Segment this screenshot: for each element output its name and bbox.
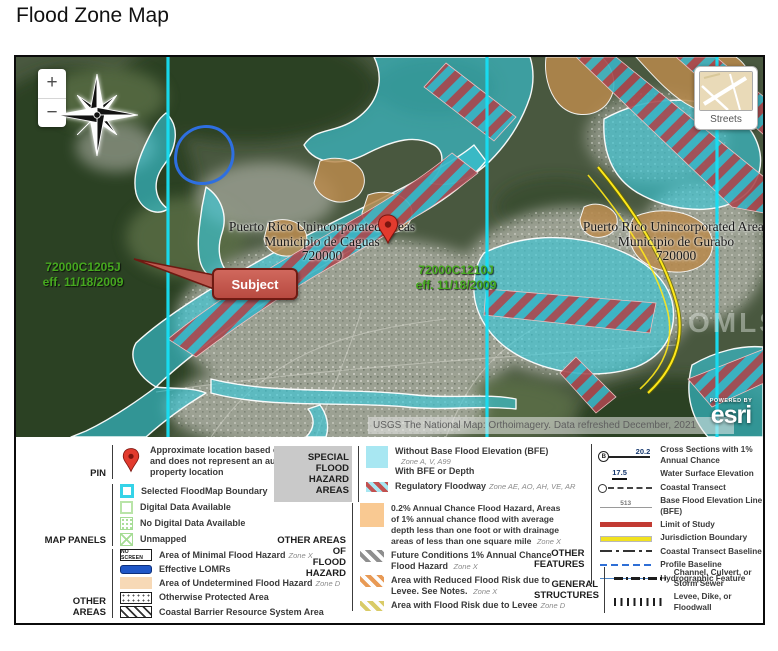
no-digital-data-swatch	[120, 517, 133, 530]
legend-item: 513 Base Flood Elevation Line (BFE)	[598, 495, 763, 517]
coastal-barrier-swatch	[120, 606, 152, 618]
levee-dike-symbol	[612, 596, 668, 608]
legend-item: No Digital Data Available	[120, 517, 268, 530]
map-canvas[interactable]: + −	[16, 57, 763, 437]
firm-panel-label-left: 72000C1205J eff. 11/18/2009	[43, 260, 124, 290]
general-structures-section-label: GENERAL STRUCTURES	[534, 579, 598, 601]
limit-of-study-symbol	[598, 518, 654, 530]
legend-group-map-panels: MAP PANELS Selected FloodMap Boundary Di…	[44, 484, 268, 546]
unmapped-swatch	[120, 533, 133, 546]
watermark: OMLS	[688, 307, 763, 339]
compass-rose-icon[interactable]	[55, 73, 139, 157]
attribution-bar: USGS The National Map: Orthoimagery. Dat…	[368, 417, 734, 434]
channel-culvert-symbol	[612, 572, 668, 584]
legend-group-other-features: OTHER FEATURES B 20.2 Cross Sections wit…	[534, 444, 763, 584]
legend-group-other-flood: OTHER AREAS OF FLOOD HAZARD 0.2% Annual …	[274, 503, 565, 611]
coastal-transect-symbol	[598, 481, 654, 493]
esri-wordmark: esri	[700, 404, 762, 426]
subject-label: Subject	[232, 277, 279, 292]
flood-map-frame: + −	[14, 55, 765, 625]
legend-pin-icon	[122, 445, 140, 475]
pin-section-label: PIN	[44, 468, 106, 479]
legend-item: Channel, Culvert, or Storm Sewer	[612, 567, 763, 589]
no-screen-swatch: NO SCREEN	[120, 549, 152, 561]
zone-d-swatch	[120, 577, 152, 589]
flood-zone-map-page: Flood Zone Map	[0, 0, 778, 651]
legend-item: B 20.2 Cross Sections with 1% Annual Cha…	[598, 444, 763, 466]
streets-basemap-button[interactable]: Streets	[694, 66, 758, 130]
coastal-transect-baseline-symbol	[598, 545, 654, 557]
firm-panel-label-right: 72000C1210J eff. 11/18/2009	[416, 263, 497, 293]
point2-percent-swatch	[360, 503, 384, 527]
water-surface-elevation-symbol: 17.5	[598, 468, 654, 480]
effective-lomr-swatch	[120, 565, 152, 574]
subject-callout-tail	[128, 249, 220, 295]
subject-callout: Subject	[212, 268, 298, 300]
map-panels-section-label: MAP PANELS	[44, 535, 106, 546]
regulatory-floodway-swatch	[366, 482, 388, 492]
legend-item: Selected FloodMap Boundary	[120, 484, 268, 498]
legend-item: Coastal Transect	[598, 481, 763, 493]
legend-item: Jurisdiction Boundary	[598, 532, 763, 544]
sfha-section-label: SPECIAL FLOOD HAZARD AREAS	[274, 446, 352, 502]
page-title: Flood Zone Map	[16, 4, 169, 28]
streets-label: Streets	[710, 114, 742, 125]
future-conditions-swatch	[360, 550, 384, 562]
legend-item: Unmapped	[120, 533, 268, 546]
legend: PIN Approximate location based on user i…	[16, 437, 763, 623]
map-pin-icon	[377, 214, 399, 244]
jurisdiction-boundary-symbol	[598, 532, 654, 544]
selected-floodmap-boundary-swatch	[120, 484, 134, 498]
reduced-risk-levee-swatch	[360, 575, 384, 587]
digital-data-swatch	[120, 501, 133, 514]
legend-item: Digital Data Available	[120, 501, 268, 514]
cross-section-symbol: B 20.2	[598, 449, 654, 461]
legend-item: 17.5 Water Surface Elevation	[598, 468, 763, 480]
bfe-line-symbol: 513	[598, 500, 654, 512]
streets-thumbnail	[699, 71, 753, 111]
esri-logo: POWERED BY esri	[700, 398, 762, 426]
flood-risk-levee-swatch	[360, 601, 384, 611]
legend-item: Coastal Transect Baseline	[598, 545, 763, 557]
sfha-cyan-swatch	[366, 446, 388, 468]
gurabo-area-label: Puerto Rico Unincorporated Areas Municip…	[583, 220, 763, 264]
legend-item: Levee, Dike, or Floodwall	[612, 591, 763, 613]
otherwise-protected-swatch	[120, 592, 152, 604]
legend-item: Limit of Study	[598, 518, 763, 530]
other-areas-section-label: OTHER AREAS	[44, 596, 106, 618]
other-flood-section-label: OTHER AREAS OF FLOOD HAZARD	[274, 535, 346, 579]
legend-group-sfha: SPECIAL FLOOD HAZARD AREAS Without Base …	[274, 446, 575, 502]
legend-group-general-structures: GENERAL STRUCTURES Channel, Culvert, or …	[534, 567, 763, 613]
